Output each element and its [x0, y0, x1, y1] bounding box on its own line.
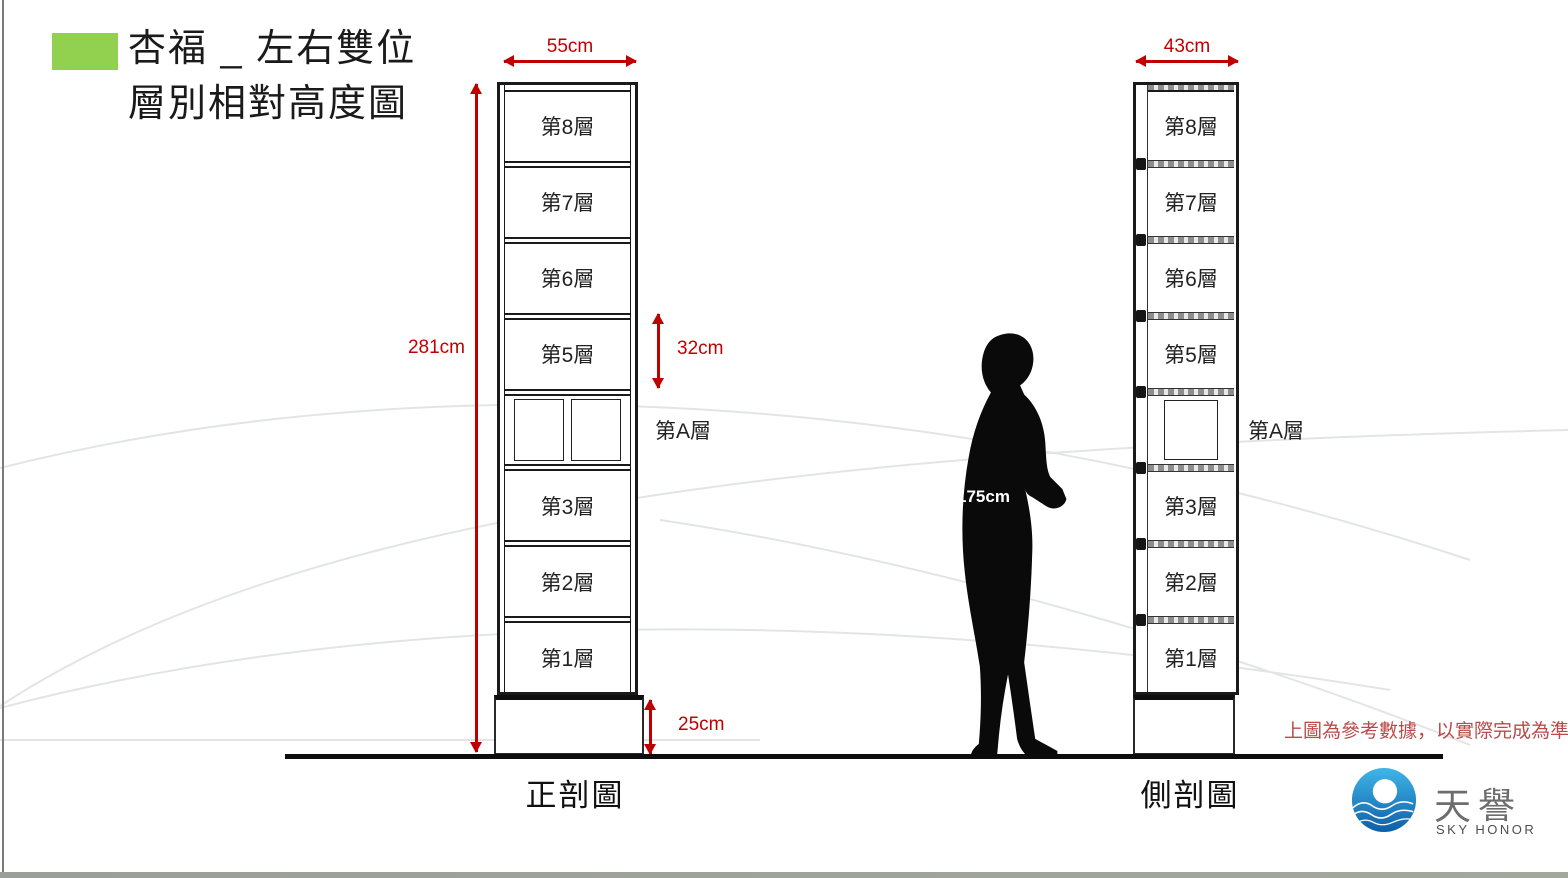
side-tower-divider [1148, 540, 1234, 548]
page-title: 杏福 _ 左右雙位 層別相對高度圖 [128, 22, 416, 132]
side-width-arrow [1136, 60, 1238, 63]
side-tower-base [1133, 695, 1235, 755]
person-silhouette [936, 330, 1070, 758]
title-accent-swatch [52, 33, 118, 70]
side-view-caption: 側剖圖 [1105, 770, 1275, 815]
side-width-label: 43cm [1136, 36, 1238, 58]
front-cell-height-label: 32cm [677, 338, 723, 360]
side-layer-cell: 第8層 [1148, 92, 1234, 160]
front-cell-height-arrow [657, 314, 660, 388]
front-tower-divider [505, 237, 630, 244]
slide-left-border [2, 0, 4, 878]
logo-wave-circle-icon [1350, 766, 1418, 834]
side-tower-divider [1148, 236, 1234, 244]
layer-label: 第1層 [541, 643, 595, 673]
front-layer-cell: 第5層 [505, 320, 630, 389]
page-title-line2: 層別相對高度圖 [128, 77, 416, 132]
side-layer-cell: 第6層 [1148, 244, 1234, 312]
front-tower: 第8層第7層第6層第5層第3層第2層第1層 [497, 82, 638, 695]
layer-label: 第8層 [541, 111, 595, 141]
layer-label: 第7層 [541, 187, 595, 217]
layer-label: 第5層 [1164, 339, 1218, 369]
front-width-label: 55cm [504, 36, 636, 58]
side-layer-cell: 第3層 [1148, 472, 1234, 540]
front-tower-divider [505, 313, 630, 320]
layer-label: 第1層 [1164, 643, 1218, 673]
layer-label: 第3層 [1164, 491, 1218, 521]
page-title-line1: 杏福 _ 左右雙位 [128, 22, 416, 77]
side-tower-divider [1148, 312, 1234, 320]
layer-label: 第3層 [541, 491, 595, 521]
layer-label: 第2層 [1164, 567, 1218, 597]
logo-subtitle: SKY HONOR [1436, 822, 1536, 837]
slide-bottom-bar [0, 872, 1568, 878]
company-logo: 天譽 SKY HONOR [1350, 764, 1568, 864]
side-a-layer-label: 第A層 [1248, 415, 1304, 445]
front-tower-divider [505, 540, 630, 547]
front-base-height-arrow [649, 700, 652, 754]
front-layer-cell: 第1層 [505, 623, 630, 692]
layer-label: 第8層 [1164, 111, 1218, 141]
person-height-label: 175cm [957, 487, 1010, 507]
side-layer-cell: 第2層 [1148, 548, 1234, 616]
side-layer-cell: 第5層 [1148, 320, 1234, 388]
front-width-arrow [504, 60, 636, 63]
side-tower-divider [1148, 388, 1234, 396]
front-layer-cell [505, 396, 630, 465]
ground-line [285, 754, 1443, 759]
front-height-label: 281cm [385, 337, 465, 359]
layer-label: 第7層 [1164, 187, 1218, 217]
layer-label: 第6層 [541, 263, 595, 293]
disclaimer-text: 上圖為參考數據，以實際完成為準 [1284, 716, 1568, 743]
front-view-caption: 正剖圖 [490, 770, 660, 815]
front-layer-cell: 第3層 [505, 471, 630, 540]
layer-label: 第6層 [1164, 263, 1218, 293]
front-height-arrow [475, 84, 478, 752]
front-layer-cell: 第7層 [505, 168, 630, 237]
side-layer-cell [1148, 396, 1234, 464]
front-layer-cell: 第6層 [505, 244, 630, 313]
side-tower-divider [1148, 160, 1234, 168]
front-tower-divider [505, 161, 630, 168]
layer-label: 第5層 [541, 339, 595, 369]
front-tower-divider [505, 616, 630, 623]
side-tower-divider [1148, 616, 1234, 624]
front-layer-cell: 第2層 [505, 547, 630, 616]
side-tower: 第8層第7層第6層第5層第3層第2層第1層 [1133, 82, 1239, 695]
side-tower-divider [1148, 464, 1234, 472]
front-tower-base [494, 695, 644, 755]
niche-square [1164, 400, 1218, 460]
side-tower-cells: 第8層第7層第6層第5層第3層第2層第1層 [1147, 85, 1234, 692]
front-tower-divider [505, 464, 630, 471]
front-layer-cell: 第8層 [505, 92, 630, 161]
front-a-layer-label: 第A層 [655, 415, 711, 445]
front-tower-cells: 第8層第7層第6層第5層第3層第2層第1層 [504, 85, 631, 692]
side-layer-cell: 第7層 [1148, 168, 1234, 236]
niche-square [514, 399, 564, 461]
front-tower-divider [505, 389, 630, 396]
front-base-height-label: 25cm [678, 714, 724, 736]
slide: 杏福 _ 左右雙位 層別相對高度圖 55cm 281cm 32cm 25cm 第… [0, 0, 1568, 878]
niche-square [571, 399, 621, 461]
layer-label: 第2層 [541, 567, 595, 597]
side-layer-cell: 第1層 [1148, 624, 1234, 692]
